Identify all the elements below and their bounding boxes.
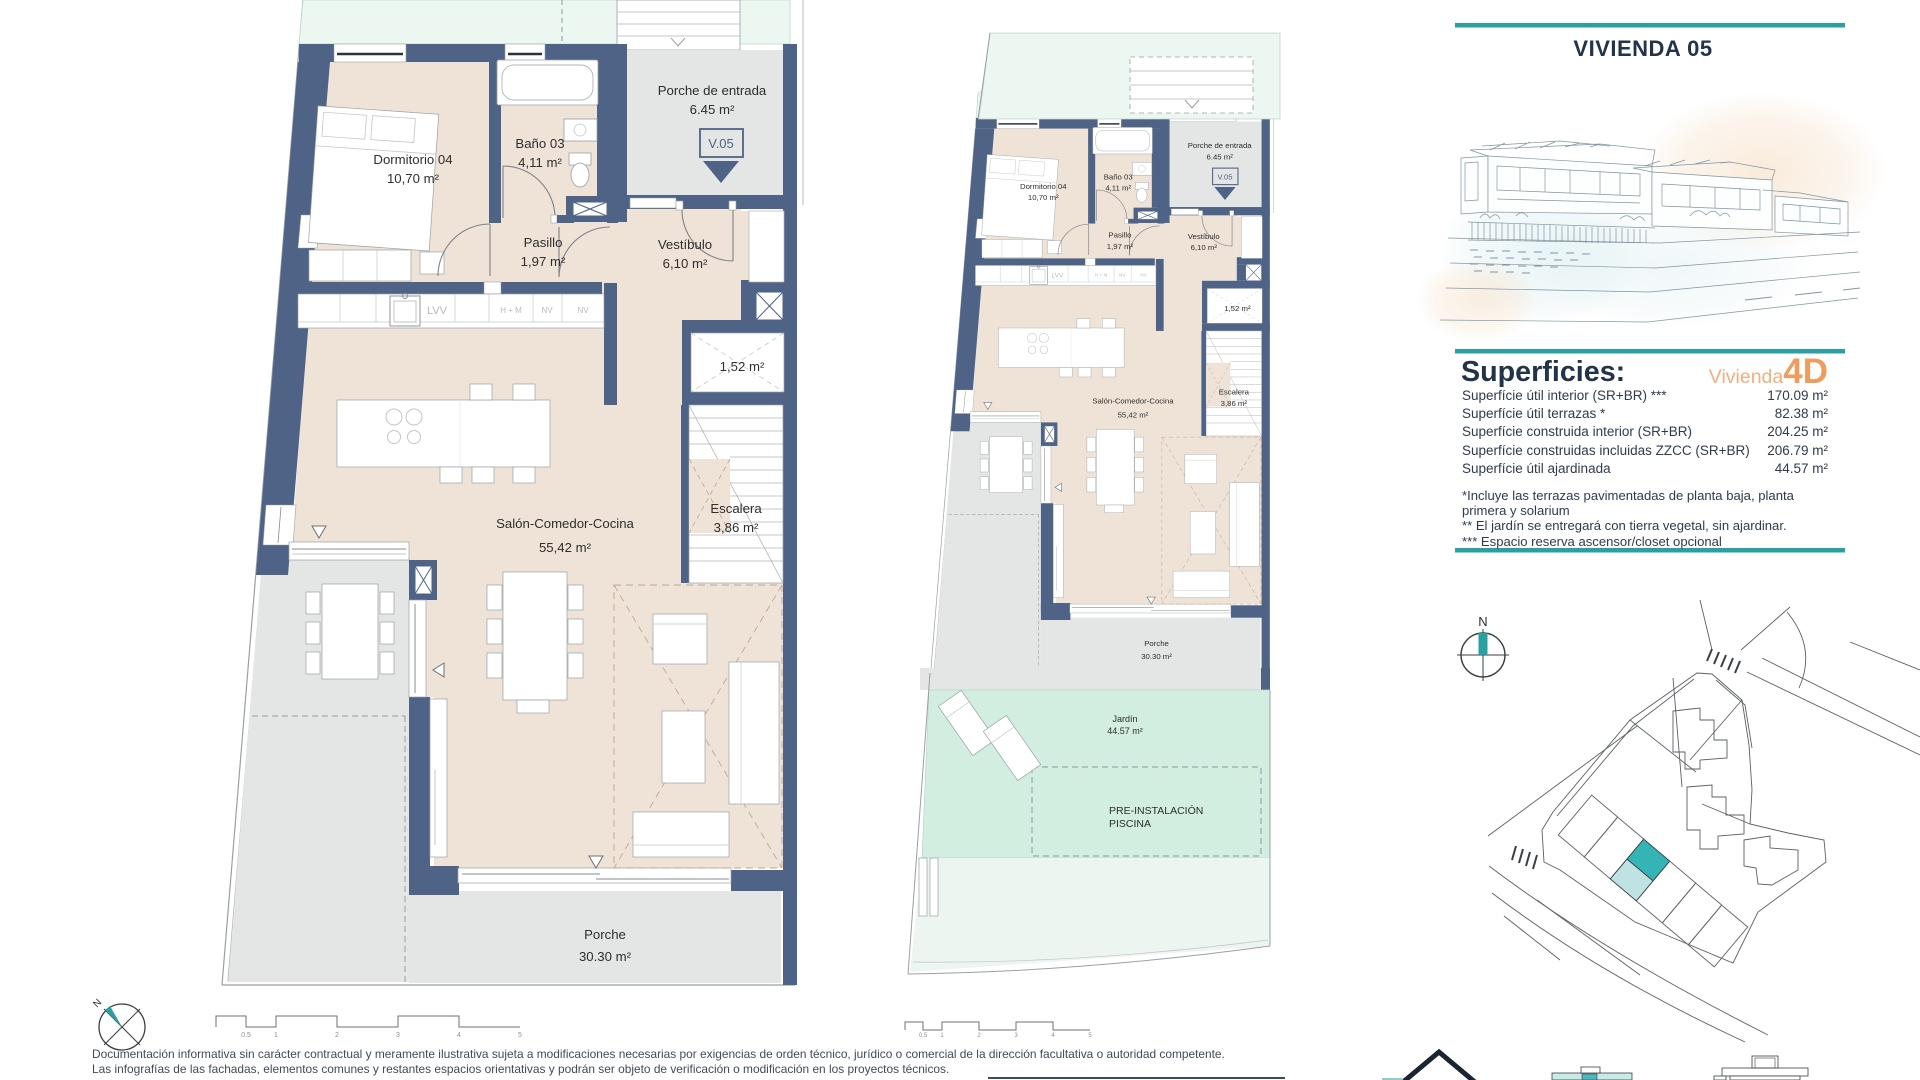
svg-text:4: 4	[457, 1032, 461, 1039]
svg-text:5: 5	[1088, 1033, 1092, 1039]
svg-text:44.57 m²: 44.57 m²	[1107, 726, 1143, 736]
svg-text:3: 3	[396, 1032, 400, 1039]
svg-text:PRE-INSTALACIÓN: PRE-INSTALACIÓN	[1109, 804, 1203, 817]
svg-text:0.5: 0.5	[241, 1032, 251, 1039]
svg-text:PISCINA: PISCINA	[1109, 818, 1151, 830]
svg-text:3: 3	[1014, 1033, 1018, 1039]
svg-text:1: 1	[274, 1032, 278, 1039]
svg-text:N: N	[1478, 614, 1487, 629]
svg-text:5: 5	[518, 1032, 522, 1039]
svg-text:Jardín: Jardín	[1112, 714, 1137, 724]
svg-text:2: 2	[335, 1032, 339, 1039]
svg-text:4: 4	[1051, 1033, 1055, 1039]
svg-text:1: 1	[940, 1033, 944, 1039]
svg-text:0.5: 0.5	[919, 1033, 928, 1039]
svg-text:2: 2	[977, 1033, 981, 1039]
svg-text:N: N	[91, 997, 104, 1010]
